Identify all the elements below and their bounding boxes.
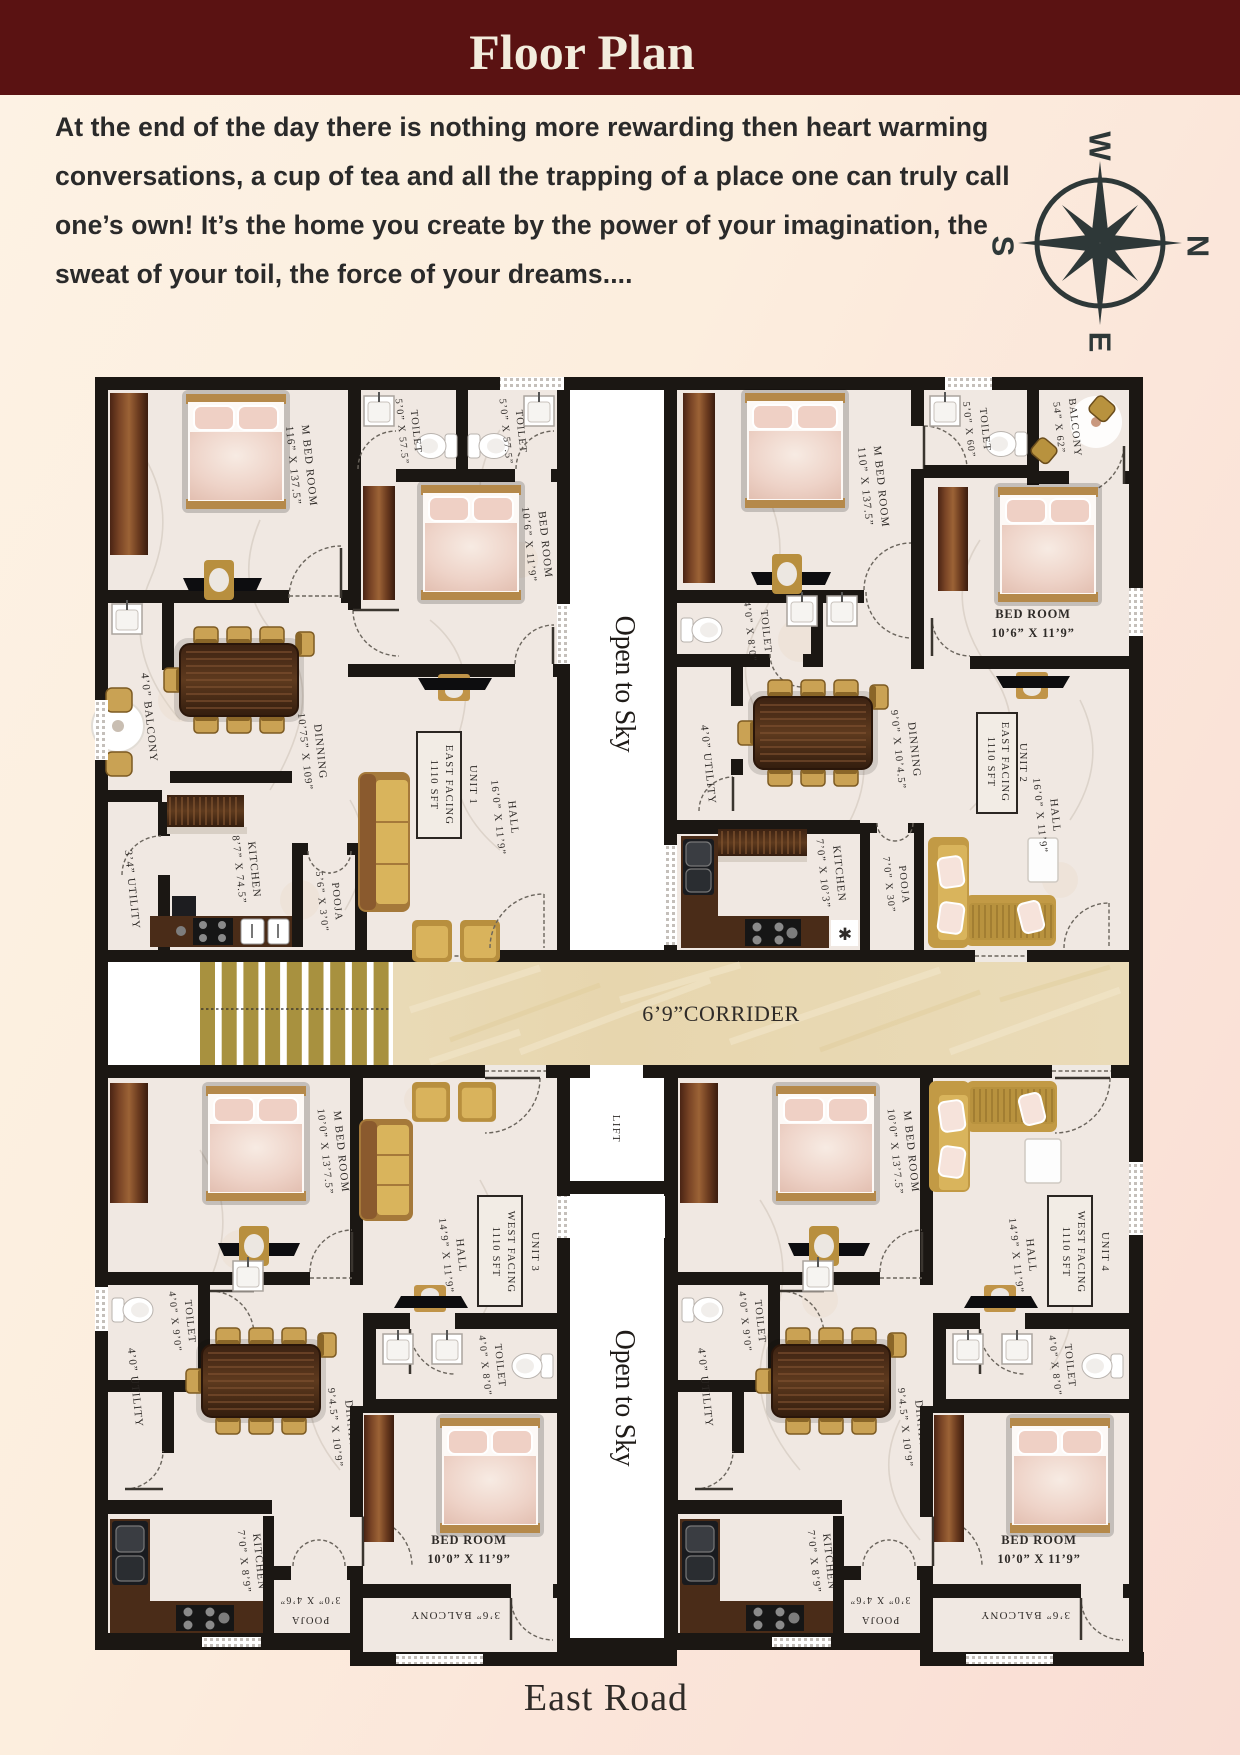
svg-text:W: W [1083,131,1118,161]
svg-text:10’0” X 11’9”: 10’0” X 11’9” [427,1552,510,1566]
svg-text:10’6” X 11’9”: 10’6” X 11’9” [991,626,1074,640]
svg-text:UNIT 3: UNIT 3 [529,1232,540,1272]
svg-text:EAST FACING: EAST FACING [999,722,1010,802]
svg-text:1110 SFT: 1110 SFT [490,1227,501,1278]
svg-text:3’6” BALCONY: 3’6” BALCONY [410,1609,500,1621]
svg-text:1110 SFT: 1110 SFT [428,760,439,811]
svg-text:3’0” X 4’6”: 3’0” X 4’6” [850,1594,911,1605]
svg-text:WEST FACING: WEST FACING [1075,1211,1086,1294]
svg-text:LIFT: LIFT [610,1115,621,1143]
svg-text:BED ROOM: BED ROOM [431,1533,507,1547]
svg-text:EAST FACING: EAST FACING [443,745,454,825]
svg-text:Open to Sky: Open to Sky [609,616,640,753]
svg-text:BED ROOM: BED ROOM [1001,1533,1077,1547]
svg-text:East Road: East Road [524,1677,688,1719]
svg-text:10’0” X 11’9”: 10’0” X 11’9” [997,1552,1080,1566]
svg-text:WEST FACING: WEST FACING [505,1211,516,1294]
svg-text:3’0” X 4’6”: 3’0” X 4’6” [280,1594,341,1605]
svg-text:✱: ✱ [838,925,852,944]
svg-text:N: N [1181,235,1216,257]
svg-text:3’6” BALCONY: 3’6” BALCONY [980,1609,1070,1621]
svg-text:1110 SFT: 1110 SFT [1060,1227,1071,1278]
svg-text:UNIT 1: UNIT 1 [467,765,478,805]
svg-text:S: S [986,236,1021,257]
svg-text:UNIT 4: UNIT 4 [1099,1232,1110,1272]
svg-text:1110 SFT: 1110 SFT [985,737,996,788]
svg-text:POOJA: POOJA [291,1614,330,1625]
svg-text:Open to Sky: Open to Sky [609,1330,640,1467]
svg-text:6’9”CORRIDER: 6’9”CORRIDER [642,1001,800,1026]
svg-text:BED ROOM: BED ROOM [995,607,1071,621]
svg-text:UNIT 2: UNIT 2 [1017,743,1028,783]
svg-text:E: E [1083,332,1118,353]
svg-text:POOJA: POOJA [861,1614,900,1625]
